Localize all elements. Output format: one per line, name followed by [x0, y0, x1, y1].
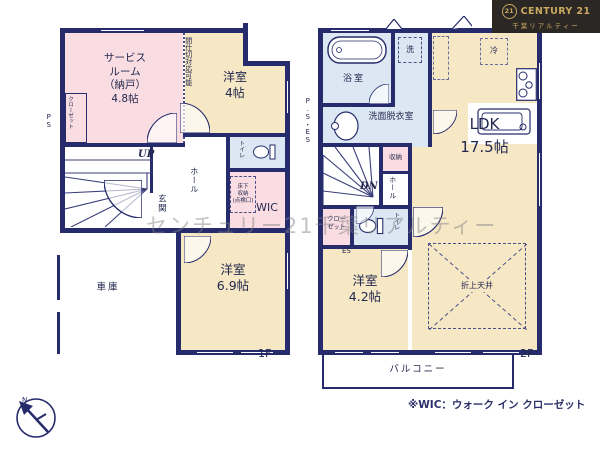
- floor1-label: 1F: [258, 347, 271, 361]
- north-label: N: [22, 396, 27, 404]
- washer-label: 洗: [406, 45, 414, 55]
- window: [482, 351, 520, 354]
- closet-1f-label: クローゼット: [67, 96, 73, 129]
- door-arc: [184, 236, 211, 263]
- stove-icon: [516, 68, 537, 101]
- bedroom-4-label: 洋室 4帖: [205, 70, 265, 101]
- window: [434, 351, 472, 354]
- fridge-label: 冷: [490, 46, 498, 56]
- cupboard-box: [433, 36, 449, 80]
- floor1-notch: [243, 23, 290, 66]
- es-label: ES: [342, 247, 351, 256]
- washbasin-icon: [330, 110, 360, 142]
- wall: [323, 245, 408, 249]
- fridge-box: 冷: [480, 38, 508, 65]
- floor-plan-canvas: UP クローゼット サービス ルーム （納戸） 4.8帖 間仕切対応可能 洋室 …: [0, 0, 600, 450]
- bedroom-42-label: 洋室 4.2帖: [335, 273, 395, 306]
- door-arc: [433, 110, 457, 134]
- service-room-label: サービス ルーム （納戸） 4.8帖: [85, 52, 165, 107]
- century21-name: CENTURY 21: [521, 6, 591, 17]
- window: [100, 29, 145, 32]
- window: [538, 152, 541, 207]
- wall: [383, 171, 408, 174]
- bathroom-label: 浴室: [334, 74, 374, 86]
- hall-2f-label: ホール: [388, 176, 396, 200]
- garage-wall-segment: [57, 312, 60, 354]
- bathtub-icon: [327, 36, 387, 64]
- wall: [183, 133, 285, 137]
- stairs-down-graphic: [323, 147, 379, 205]
- stairs-up-label: UP: [138, 148, 154, 161]
- window: [330, 29, 370, 32]
- underfloor-storage-label: 床下 収納 (点検口): [233, 184, 254, 205]
- ps-1f-label: PS: [44, 113, 52, 129]
- vent-mark: [386, 19, 402, 29]
- ps-es-label: P.S・ES: [303, 97, 311, 144]
- window: [286, 252, 289, 290]
- window: [334, 351, 364, 354]
- garage-wall-segment: [57, 255, 60, 300]
- floor2-label: 2F: [520, 347, 533, 361]
- balcony-label: バルコニー: [322, 364, 514, 376]
- bedroom-69-label: 洋室 6.9帖: [203, 262, 263, 295]
- door-arc: [147, 113, 177, 143]
- north-arrow-icon: N: [12, 394, 60, 442]
- door-arc: [369, 84, 389, 104]
- door-arc: [180, 103, 210, 133]
- vent-mark: [452, 16, 472, 29]
- storage-2f-label: 収納: [383, 153, 408, 161]
- door-arc-entrance: [104, 180, 142, 218]
- hall-1f-label: ホール: [189, 167, 198, 194]
- window: [196, 351, 234, 354]
- wall: [226, 168, 285, 172]
- garage-label: 車庫: [88, 282, 128, 294]
- stairs-down-label: DN: [360, 180, 378, 193]
- washroom-label: 洗面脱衣室: [358, 112, 424, 124]
- century21-logo: 21 CENTURY 21 千葉リアルティー: [492, 0, 600, 33]
- wic-note: ※WIC：ウォーク イン クローゼット: [408, 397, 585, 412]
- washer-box: 洗: [398, 37, 422, 63]
- door-arc: [381, 250, 408, 277]
- window: [538, 62, 541, 100]
- toilet-1f-label: トイレ: [237, 140, 244, 158]
- coffered-ceiling-box: 折上天井: [428, 243, 526, 329]
- toilet-icon: [252, 142, 278, 162]
- coffered-ceiling-label: 折上天井: [458, 280, 496, 292]
- partition-note-label: 間仕切対応可能: [184, 37, 192, 86]
- window: [286, 80, 289, 114]
- century21-subtitle: 千葉リアルティー: [512, 20, 580, 30]
- window: [370, 351, 400, 354]
- wall: [391, 33, 395, 107]
- century21-badge-icon: 21: [502, 4, 517, 19]
- watermark-text: センチュリー21千葉リアルティー: [146, 210, 497, 240]
